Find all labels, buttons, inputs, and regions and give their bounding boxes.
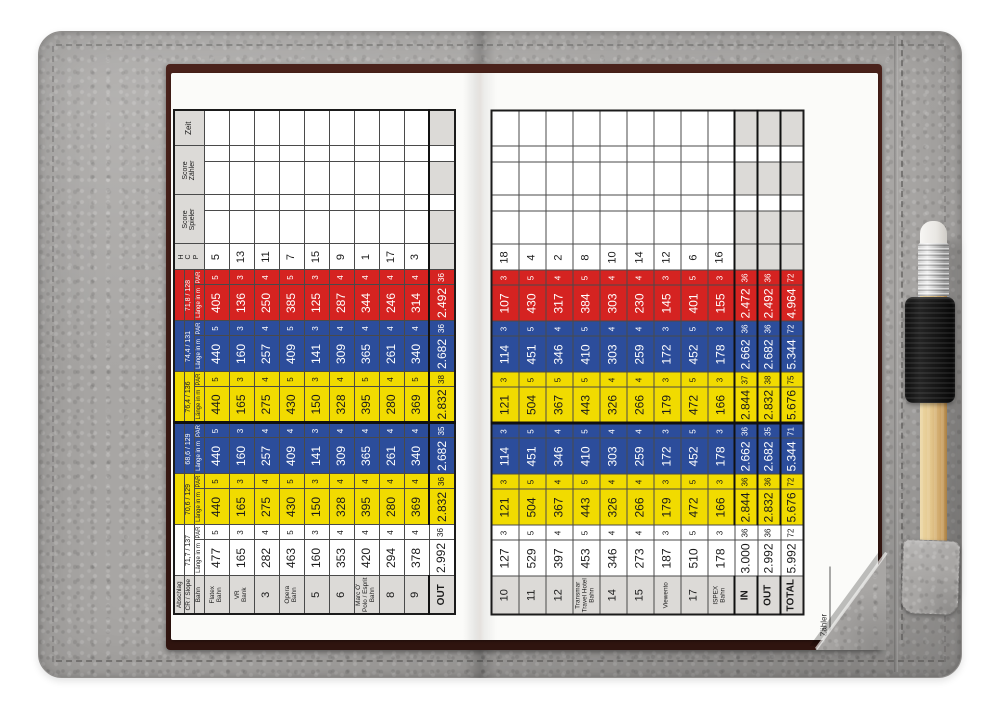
length-cell: 166 bbox=[707, 489, 734, 525]
total-par-cell: 72 bbox=[780, 474, 803, 489]
par-cell: 4 bbox=[545, 321, 572, 336]
zeit-cell bbox=[518, 110, 545, 146]
par-cell: 5 bbox=[518, 474, 545, 489]
back-nine-page: 1012731213114312131143107318115295504545… bbox=[488, 75, 878, 640]
par-cell: 3 bbox=[304, 474, 329, 489]
par-cell: 3 bbox=[491, 270, 518, 285]
hcp-cell: 3 bbox=[404, 244, 429, 270]
zeit-cell bbox=[354, 110, 379, 146]
hcp-total-cell bbox=[757, 244, 780, 270]
length-cell: 409 bbox=[279, 336, 304, 372]
par-cell: 3 bbox=[707, 474, 734, 489]
hcp-cell: 8 bbox=[572, 244, 599, 270]
par-cell: 4 bbox=[379, 525, 404, 540]
par-cell: 5 bbox=[545, 372, 572, 387]
zeit-cell bbox=[229, 110, 254, 146]
hcp-cell: 15 bbox=[304, 244, 329, 270]
hole-name-cell: VR Bank bbox=[229, 576, 254, 614]
zeit-cell bbox=[653, 110, 680, 146]
par-cell: 5 bbox=[518, 525, 545, 540]
score-zaehler-points-cell bbox=[379, 146, 404, 162]
par-cell: 4 bbox=[254, 474, 279, 489]
length-cell: 187 bbox=[653, 540, 680, 576]
score-spieler-points-cell bbox=[379, 195, 404, 211]
hcp-total-cell bbox=[429, 244, 455, 270]
score-zaehler-points-cell bbox=[404, 146, 429, 162]
par-cell: 4 bbox=[379, 372, 404, 387]
par-subheader: PAR bbox=[194, 270, 204, 285]
length-cell: 346 bbox=[599, 540, 626, 576]
par-cell: 4 bbox=[329, 474, 354, 489]
score-spieler-cell bbox=[329, 211, 354, 244]
score-zaehler-points-cell bbox=[545, 146, 572, 162]
length-cell: 440 bbox=[204, 438, 229, 474]
total-par-cell: 36 bbox=[757, 321, 780, 336]
total-length-cell: 4.964 bbox=[780, 285, 803, 321]
zeit-cell bbox=[254, 110, 279, 146]
par-cell: 5 bbox=[680, 525, 707, 540]
hcp-cell: 5 bbox=[204, 244, 229, 270]
hcp-cell: 1 bbox=[354, 244, 379, 270]
score-spieler-total-cell bbox=[429, 211, 455, 244]
par-cell: 4 bbox=[599, 474, 626, 489]
length-cell: 150 bbox=[304, 489, 329, 525]
length-cell: 397 bbox=[545, 540, 572, 576]
tee-color-header bbox=[174, 474, 184, 525]
length-cell: 178 bbox=[707, 336, 734, 372]
length-cell: 410 bbox=[572, 336, 599, 372]
score-zaehler-header: Score Zähler bbox=[174, 146, 204, 195]
par-cell: 3 bbox=[304, 525, 329, 540]
length-cell: 409 bbox=[279, 438, 304, 474]
score-zaehler-points-cell bbox=[329, 146, 354, 162]
length-cell: 273 bbox=[626, 540, 653, 576]
length-cell: 261 bbox=[379, 336, 404, 372]
zeit-total-cell bbox=[780, 110, 803, 146]
score-zaehler-points-cell bbox=[229, 146, 254, 162]
tee-cr-slope-value: 74,4 / 131 bbox=[184, 321, 194, 372]
total-par-cell: 36 bbox=[734, 525, 757, 540]
length-cell: 121 bbox=[491, 387, 518, 423]
score-zaehler-cell bbox=[491, 162, 518, 195]
length-cell: 172 bbox=[653, 438, 680, 474]
par-cell: 3 bbox=[707, 372, 734, 387]
total-par-cell: 72 bbox=[780, 270, 803, 285]
hole-name-cell: ISPEX Bahn bbox=[707, 576, 734, 614]
par-cell: 4 bbox=[279, 423, 304, 438]
length-cell: 384 bbox=[572, 285, 599, 321]
hole-name-cell: Transmar Travel Hotel Bahn bbox=[572, 576, 599, 614]
par-cell: 4 bbox=[626, 423, 653, 438]
laenge-subheader: Länge in m bbox=[194, 336, 204, 372]
zeit-cell bbox=[279, 110, 304, 146]
score-spieler-points-cell bbox=[229, 195, 254, 211]
score-zaehler-points-cell bbox=[626, 146, 653, 162]
par-cell: 4 bbox=[599, 525, 626, 540]
tee-cr-slope-value: 76,4 / 136 bbox=[184, 372, 194, 423]
par-cell: 4 bbox=[599, 372, 626, 387]
par-cell: 5 bbox=[354, 372, 379, 387]
hole-name-cell: 3 bbox=[254, 576, 279, 614]
par-cell: 3 bbox=[229, 372, 254, 387]
length-cell: 303 bbox=[599, 438, 626, 474]
length-cell: 430 bbox=[279, 489, 304, 525]
score-spieler-cell bbox=[354, 211, 379, 244]
par-cell: 5 bbox=[572, 474, 599, 489]
score-spieler-total-cell bbox=[734, 211, 757, 244]
par-cell: 3 bbox=[707, 270, 734, 285]
pencil-ferrule bbox=[918, 243, 949, 301]
length-cell: 125 bbox=[304, 285, 329, 321]
hcp-cell: 6 bbox=[680, 244, 707, 270]
total-length-cell: 5.676 bbox=[780, 489, 803, 525]
total-length-cell: 2.662 bbox=[734, 438, 757, 474]
length-cell: 401 bbox=[680, 285, 707, 321]
par-cell: 4 bbox=[254, 321, 279, 336]
par-cell: 4 bbox=[599, 270, 626, 285]
total-length-cell: 2.832 bbox=[429, 489, 455, 525]
score-zaehler-cell bbox=[404, 162, 429, 195]
length-cell: 443 bbox=[572, 489, 599, 525]
score-spieler-points-total-cell bbox=[734, 195, 757, 211]
par-cell: 5 bbox=[204, 270, 229, 285]
score-zaehler-points-cell bbox=[491, 146, 518, 162]
score-zaehler-cell bbox=[707, 162, 734, 195]
score-spieler-total-cell bbox=[780, 211, 803, 244]
score-spieler-points-total-cell bbox=[429, 195, 455, 211]
score-zaehler-cell bbox=[279, 162, 304, 195]
hcp-cell: 10 bbox=[599, 244, 626, 270]
total-length-cell: 2.832 bbox=[429, 387, 455, 423]
length-cell: 453 bbox=[572, 540, 599, 576]
score-spieler-points-total-cell bbox=[757, 195, 780, 211]
length-cell: 452 bbox=[680, 336, 707, 372]
length-cell: 303 bbox=[599, 285, 626, 321]
par-cell: 5 bbox=[680, 423, 707, 438]
score-spieler-points-cell bbox=[404, 195, 429, 211]
par-cell: 4 bbox=[404, 321, 429, 336]
tee-color-header bbox=[174, 423, 184, 474]
score-spieler-points-cell bbox=[518, 195, 545, 211]
score-spieler-cell bbox=[545, 211, 572, 244]
tee-color-header bbox=[174, 372, 184, 423]
total-length-cell: 2.844 bbox=[734, 387, 757, 423]
length-cell: 309 bbox=[329, 336, 354, 372]
zeit-total-cell bbox=[734, 110, 757, 146]
laenge-subheader: Länge in m bbox=[194, 285, 204, 321]
length-cell: 266 bbox=[626, 489, 653, 525]
length-cell: 440 bbox=[204, 387, 229, 423]
score-spieler-cell bbox=[379, 211, 404, 244]
hcp-cell: 11 bbox=[254, 244, 279, 270]
total-label-cell: TOTAL bbox=[780, 576, 803, 614]
length-cell: 353 bbox=[329, 540, 354, 576]
hole-name-cell: Flatex Bahn bbox=[204, 576, 229, 614]
par-cell: 4 bbox=[354, 423, 379, 438]
hole-name-cell: 9 bbox=[404, 576, 429, 614]
length-cell: 121 bbox=[491, 489, 518, 525]
par-cell: 3 bbox=[304, 270, 329, 285]
par-cell: 4 bbox=[626, 321, 653, 336]
length-cell: 150 bbox=[304, 387, 329, 423]
score-zaehler-total-cell bbox=[429, 162, 455, 195]
total-par-cell: 72 bbox=[780, 525, 803, 540]
par-cell: 4 bbox=[626, 474, 653, 489]
par-cell: 5 bbox=[680, 321, 707, 336]
length-cell: 114 bbox=[491, 336, 518, 372]
hcp-total-cell bbox=[734, 244, 757, 270]
scorecard: AbschlagH C PScore SpielerScore ZählerZe… bbox=[171, 73, 878, 640]
score-spieler-points-cell bbox=[572, 195, 599, 211]
total-par-cell: 35 bbox=[429, 423, 455, 438]
tee-cr-slope-value: 71,7 / 137 bbox=[184, 525, 194, 576]
par-cell: 4 bbox=[379, 474, 404, 489]
zeit-cell bbox=[572, 110, 599, 146]
bahn-header: Bahn bbox=[194, 576, 204, 614]
hole-name-cell: 17 bbox=[680, 576, 707, 614]
pencil-loop bbox=[905, 297, 955, 403]
length-cell: 114 bbox=[491, 438, 518, 474]
total-par-cell: 37 bbox=[734, 372, 757, 387]
par-cell: 3 bbox=[304, 321, 329, 336]
par-cell: 3 bbox=[653, 525, 680, 540]
length-cell: 160 bbox=[229, 336, 254, 372]
par-cell: 5 bbox=[680, 270, 707, 285]
par-cell: 5 bbox=[572, 423, 599, 438]
par-cell: 5 bbox=[204, 372, 229, 387]
score-zaehler-points-cell bbox=[680, 146, 707, 162]
length-cell: 326 bbox=[599, 489, 626, 525]
score-zaehler-points-cell bbox=[354, 146, 379, 162]
total-par-cell: 36 bbox=[429, 270, 455, 285]
length-cell: 326 bbox=[599, 387, 626, 423]
hcp-cell: 17 bbox=[379, 244, 404, 270]
hcp-cell: 9 bbox=[329, 244, 354, 270]
length-cell: 367 bbox=[545, 387, 572, 423]
score-zaehler-cell bbox=[572, 162, 599, 195]
score-zaehler-cell bbox=[599, 162, 626, 195]
par-cell: 4 bbox=[404, 525, 429, 540]
total-par-cell: 36 bbox=[734, 321, 757, 336]
length-cell: 172 bbox=[653, 336, 680, 372]
length-cell: 294 bbox=[379, 540, 404, 576]
score-zaehler-points-cell bbox=[518, 146, 545, 162]
score-zaehler-cell bbox=[545, 162, 572, 195]
total-par-cell: 38 bbox=[757, 372, 780, 387]
hcp-cell: 18 bbox=[491, 244, 518, 270]
total-par-cell: 36 bbox=[429, 321, 455, 336]
length-cell: 346 bbox=[545, 336, 572, 372]
length-cell: 178 bbox=[707, 438, 734, 474]
hcp-cell: 7 bbox=[279, 244, 304, 270]
zeit-cell bbox=[707, 110, 734, 146]
zeit-cell bbox=[491, 110, 518, 146]
score-spieler-cell bbox=[204, 211, 229, 244]
score-spieler-points-cell bbox=[279, 195, 304, 211]
score-spieler-points-cell bbox=[204, 195, 229, 211]
cr-slope-header: CR / Slope bbox=[184, 576, 194, 614]
length-cell: 309 bbox=[329, 438, 354, 474]
zeit-cell bbox=[329, 110, 354, 146]
cover-seam-crease bbox=[894, 36, 898, 672]
par-cell: 3 bbox=[491, 321, 518, 336]
length-cell: 385 bbox=[279, 285, 304, 321]
par-cell: 4 bbox=[254, 423, 279, 438]
front-nine-table: AbschlagH C PScore SpielerScore ZählerZe… bbox=[173, 109, 456, 615]
length-cell: 165 bbox=[229, 387, 254, 423]
total-length-cell: 5.992 bbox=[780, 540, 803, 576]
par-cell: 5 bbox=[204, 525, 229, 540]
score-zaehler-cell bbox=[229, 162, 254, 195]
par-cell: 5 bbox=[279, 270, 304, 285]
score-spieler-cell bbox=[653, 211, 680, 244]
par-cell: 5 bbox=[518, 321, 545, 336]
score-spieler-points-cell bbox=[599, 195, 626, 211]
total-length-cell: 2.832 bbox=[757, 387, 780, 423]
total-par-cell: 36 bbox=[757, 525, 780, 540]
score-spieler-points-cell bbox=[491, 195, 518, 211]
par-cell: 4 bbox=[379, 423, 404, 438]
par-subheader: PAR bbox=[194, 321, 204, 336]
total-length-cell: 2.492 bbox=[757, 285, 780, 321]
par-cell: 4 bbox=[329, 321, 354, 336]
length-cell: 250 bbox=[254, 285, 279, 321]
total-par-cell: 36 bbox=[734, 423, 757, 438]
length-cell: 179 bbox=[653, 489, 680, 525]
total-label-cell: OUT bbox=[757, 576, 780, 614]
length-cell: 166 bbox=[707, 387, 734, 423]
par-cell: 4 bbox=[254, 270, 279, 285]
total-length-cell: 5.344 bbox=[780, 438, 803, 474]
hole-name-cell: Viewento bbox=[653, 576, 680, 614]
score-zaehler-cell bbox=[254, 162, 279, 195]
score-spieler-cell bbox=[229, 211, 254, 244]
score-zaehler-points-total-cell bbox=[757, 146, 780, 162]
score-zaehler-cell bbox=[626, 162, 653, 195]
length-cell: 230 bbox=[626, 285, 653, 321]
par-cell: 4 bbox=[626, 270, 653, 285]
par-cell: 5 bbox=[680, 372, 707, 387]
par-cell: 3 bbox=[491, 525, 518, 540]
par-cell: 4 bbox=[626, 525, 653, 540]
zeit-header: Zeit bbox=[174, 110, 204, 146]
zeit-cell bbox=[404, 110, 429, 146]
hole-name-cell: 10 bbox=[491, 576, 518, 614]
par-cell: 4 bbox=[599, 321, 626, 336]
par-cell: 5 bbox=[204, 474, 229, 489]
length-cell: 472 bbox=[680, 387, 707, 423]
total-par-cell: 38 bbox=[429, 372, 455, 387]
par-cell: 5 bbox=[204, 321, 229, 336]
length-cell: 127 bbox=[491, 540, 518, 576]
length-cell: 420 bbox=[354, 540, 379, 576]
par-cell: 4 bbox=[329, 270, 354, 285]
par-cell: 3 bbox=[491, 474, 518, 489]
length-cell: 107 bbox=[491, 285, 518, 321]
score-spieler-points-cell bbox=[329, 195, 354, 211]
score-zaehler-points-total-cell bbox=[780, 146, 803, 162]
par-cell: 3 bbox=[229, 525, 254, 540]
par-cell: 4 bbox=[599, 423, 626, 438]
total-length-cell: 2.682 bbox=[429, 336, 455, 372]
pencil-pocket bbox=[901, 539, 961, 615]
total-par-cell: 71 bbox=[780, 423, 803, 438]
par-subheader: PAR bbox=[194, 423, 204, 438]
total-length-cell: 2.492 bbox=[429, 285, 455, 321]
total-par-cell: 36 bbox=[734, 270, 757, 285]
length-cell: 340 bbox=[404, 438, 429, 474]
score-spieler-cell bbox=[518, 211, 545, 244]
total-length-cell: 2.682 bbox=[757, 438, 780, 474]
length-cell: 165 bbox=[229, 540, 254, 576]
par-cell: 4 bbox=[545, 474, 572, 489]
score-zaehler-points-cell bbox=[599, 146, 626, 162]
hcp-total-cell bbox=[780, 244, 803, 270]
front-nine-page: AbschlagH C PScore SpielerScore ZählerZe… bbox=[171, 75, 470, 640]
total-length-cell: 2.682 bbox=[757, 336, 780, 372]
total-length-cell: 2.844 bbox=[734, 489, 757, 525]
score-zaehler-points-cell bbox=[279, 146, 304, 162]
length-cell: 395 bbox=[354, 489, 379, 525]
total-par-cell: 72 bbox=[780, 321, 803, 336]
score-zaehler-cell bbox=[329, 162, 354, 195]
length-cell: 443 bbox=[572, 387, 599, 423]
par-cell: 4 bbox=[404, 474, 429, 489]
par-cell: 4 bbox=[329, 423, 354, 438]
length-cell: 440 bbox=[204, 336, 229, 372]
score-zaehler-points-cell bbox=[304, 146, 329, 162]
total-length-cell: 2.832 bbox=[757, 489, 780, 525]
length-cell: 328 bbox=[329, 489, 354, 525]
hole-name-cell: 11 bbox=[518, 576, 545, 614]
tee-cr-slope-value: 70,6 / 129 bbox=[184, 474, 194, 525]
zeit-cell bbox=[304, 110, 329, 146]
score-zaehler-cell bbox=[653, 162, 680, 195]
hole-name-cell: Marc O' Polo / Esprit Bahn bbox=[354, 576, 379, 614]
score-zaehler-points-total-cell bbox=[734, 146, 757, 162]
laenge-subheader: Länge in m bbox=[194, 438, 204, 474]
par-cell: 3 bbox=[304, 372, 329, 387]
par-cell: 5 bbox=[204, 423, 229, 438]
total-length-cell: 5.344 bbox=[780, 336, 803, 372]
tee-color-header bbox=[174, 525, 184, 576]
score-spieler-total-cell bbox=[757, 211, 780, 244]
par-cell: 5 bbox=[572, 270, 599, 285]
score-spieler-cell bbox=[707, 211, 734, 244]
length-cell: 477 bbox=[204, 540, 229, 576]
zeit-cell bbox=[626, 110, 653, 146]
par-cell: 4 bbox=[354, 270, 379, 285]
par-cell: 3 bbox=[653, 270, 680, 285]
length-cell: 472 bbox=[680, 489, 707, 525]
length-cell: 259 bbox=[626, 336, 653, 372]
zeit-cell bbox=[204, 110, 229, 146]
hcp-cell: 2 bbox=[545, 244, 572, 270]
par-cell: 5 bbox=[680, 474, 707, 489]
length-cell: 395 bbox=[354, 387, 379, 423]
tee-color-header bbox=[174, 270, 184, 321]
tee-cr-slope-value: 71,8 / 128 bbox=[184, 270, 194, 321]
par-cell: 5 bbox=[572, 525, 599, 540]
length-cell: 287 bbox=[329, 285, 354, 321]
length-cell: 136 bbox=[229, 285, 254, 321]
length-cell: 340 bbox=[404, 336, 429, 372]
score-zaehler-cell bbox=[304, 162, 329, 195]
score-spieler-cell bbox=[254, 211, 279, 244]
total-par-cell: 75 bbox=[780, 372, 803, 387]
total-par-cell: 36 bbox=[757, 474, 780, 489]
par-cell: 3 bbox=[653, 423, 680, 438]
